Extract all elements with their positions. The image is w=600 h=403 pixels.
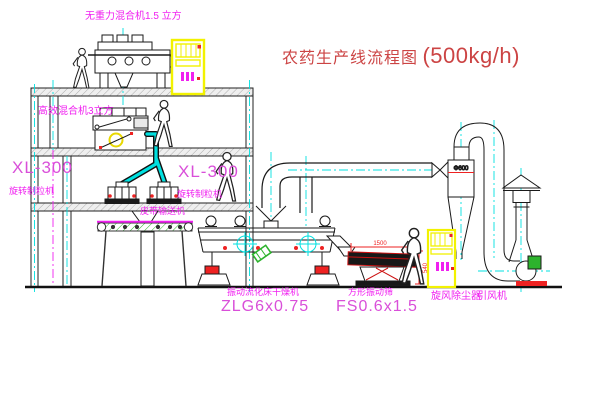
svg-text:1500: 1500 [373, 241, 387, 247]
label-sieve-model: FS0.6x1.5 [336, 299, 418, 315]
vibration-motor [253, 245, 271, 262]
roof-slab [31, 88, 253, 96]
control-cabinet-1 [172, 40, 204, 94]
label-gravity-free-mixer: 无重力混合机1.5 立方 [85, 12, 182, 22]
rotary-granulator-left [105, 182, 139, 204]
fluid-bed-dryer [198, 206, 339, 285]
process-flow-diagram: Φ600 1500 540 [0, 0, 600, 403]
fan-motor [528, 256, 541, 269]
label-sieve-name: 方形振动筛 [348, 288, 393, 297]
label-high-mixer: 高效混合机3立方 [38, 107, 114, 117]
cyclone-diameter-dim: Φ600 [454, 166, 469, 172]
person-roof [73, 48, 89, 88]
person-level2 [154, 100, 172, 146]
label-granulator-model-mid: XL-300 [178, 163, 239, 180]
label-dryer-model: ZLG6x0.75 [221, 299, 309, 315]
label-dryer-name: 振动流化床干燥机 [227, 288, 299, 297]
cyclone-separator: Φ600 [448, 123, 520, 281]
label-fan: 引风机 [477, 292, 507, 302]
diagram-title: 农药生产线流程图 (500kg/h) [282, 45, 520, 67]
fan-base [516, 281, 547, 286]
label-belt-conveyor: 皮带输送机 [140, 207, 185, 216]
rotary-granulator-right [147, 182, 181, 204]
label-granulator-name-left: 旋转制粒机 [9, 187, 54, 196]
exhaust-stack [503, 175, 540, 262]
label-granulator-name-mid: 旋转制粒机 [177, 190, 222, 199]
indicator-light [198, 45, 202, 49]
column-upper [50, 96, 58, 148]
title-text: 农药生产线流程图 [282, 50, 418, 67]
mixer-discharge-funnel [115, 73, 133, 87]
label-granulator-model-left: XL-300 [12, 159, 73, 176]
title-capacity: (500kg/h) [422, 43, 519, 68]
control-cabinet-2 [428, 230, 455, 287]
label-cyclone: 旋风除尘器 [431, 292, 481, 302]
sieve-deck [348, 252, 416, 267]
